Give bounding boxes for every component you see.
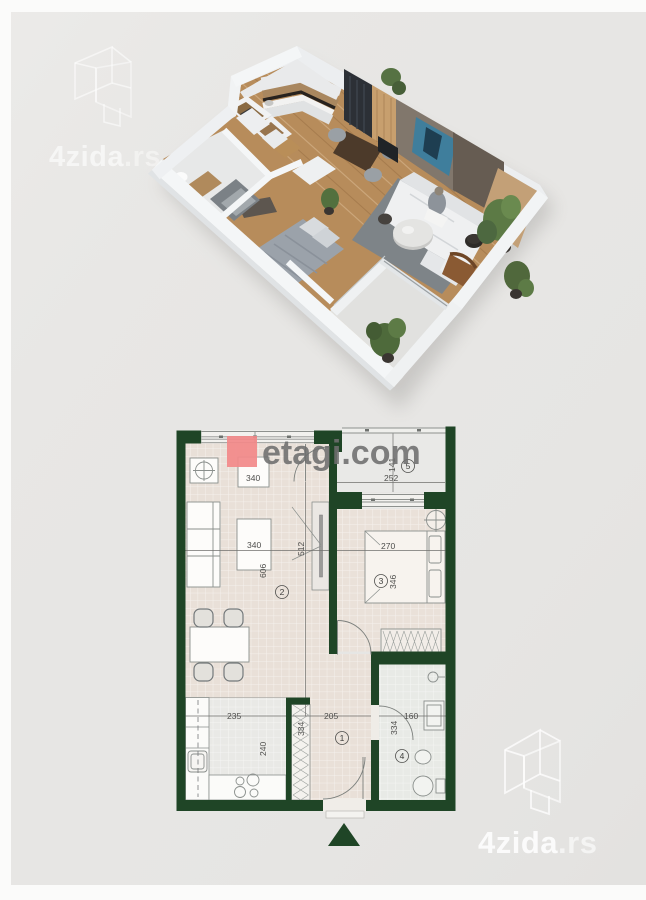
svg-text:4zida.rs: 4zida.rs: [478, 825, 597, 860]
svg-text:4zida.rs: 4zida.rs: [49, 141, 161, 173]
svg-text:240: 240: [258, 742, 268, 756]
svg-text:3: 3: [379, 576, 384, 586]
svg-text:etagi.com: etagi.com: [262, 434, 421, 472]
svg-text:252: 252: [384, 473, 398, 483]
svg-text:340: 340: [247, 540, 261, 550]
svg-text:512: 512: [296, 542, 306, 556]
svg-text:606: 606: [258, 564, 268, 578]
svg-text:340: 340: [246, 473, 260, 483]
svg-text:334: 334: [389, 721, 399, 735]
svg-text:160: 160: [404, 711, 418, 721]
svg-text:205: 205: [324, 711, 338, 721]
svg-text:2: 2: [280, 587, 285, 597]
svg-text:235: 235: [227, 711, 241, 721]
svg-text:346: 346: [388, 575, 398, 589]
svg-text:1: 1: [340, 733, 345, 743]
svg-text:334: 334: [296, 722, 306, 736]
svg-text:270: 270: [381, 541, 395, 551]
svg-text:4: 4: [400, 751, 405, 761]
